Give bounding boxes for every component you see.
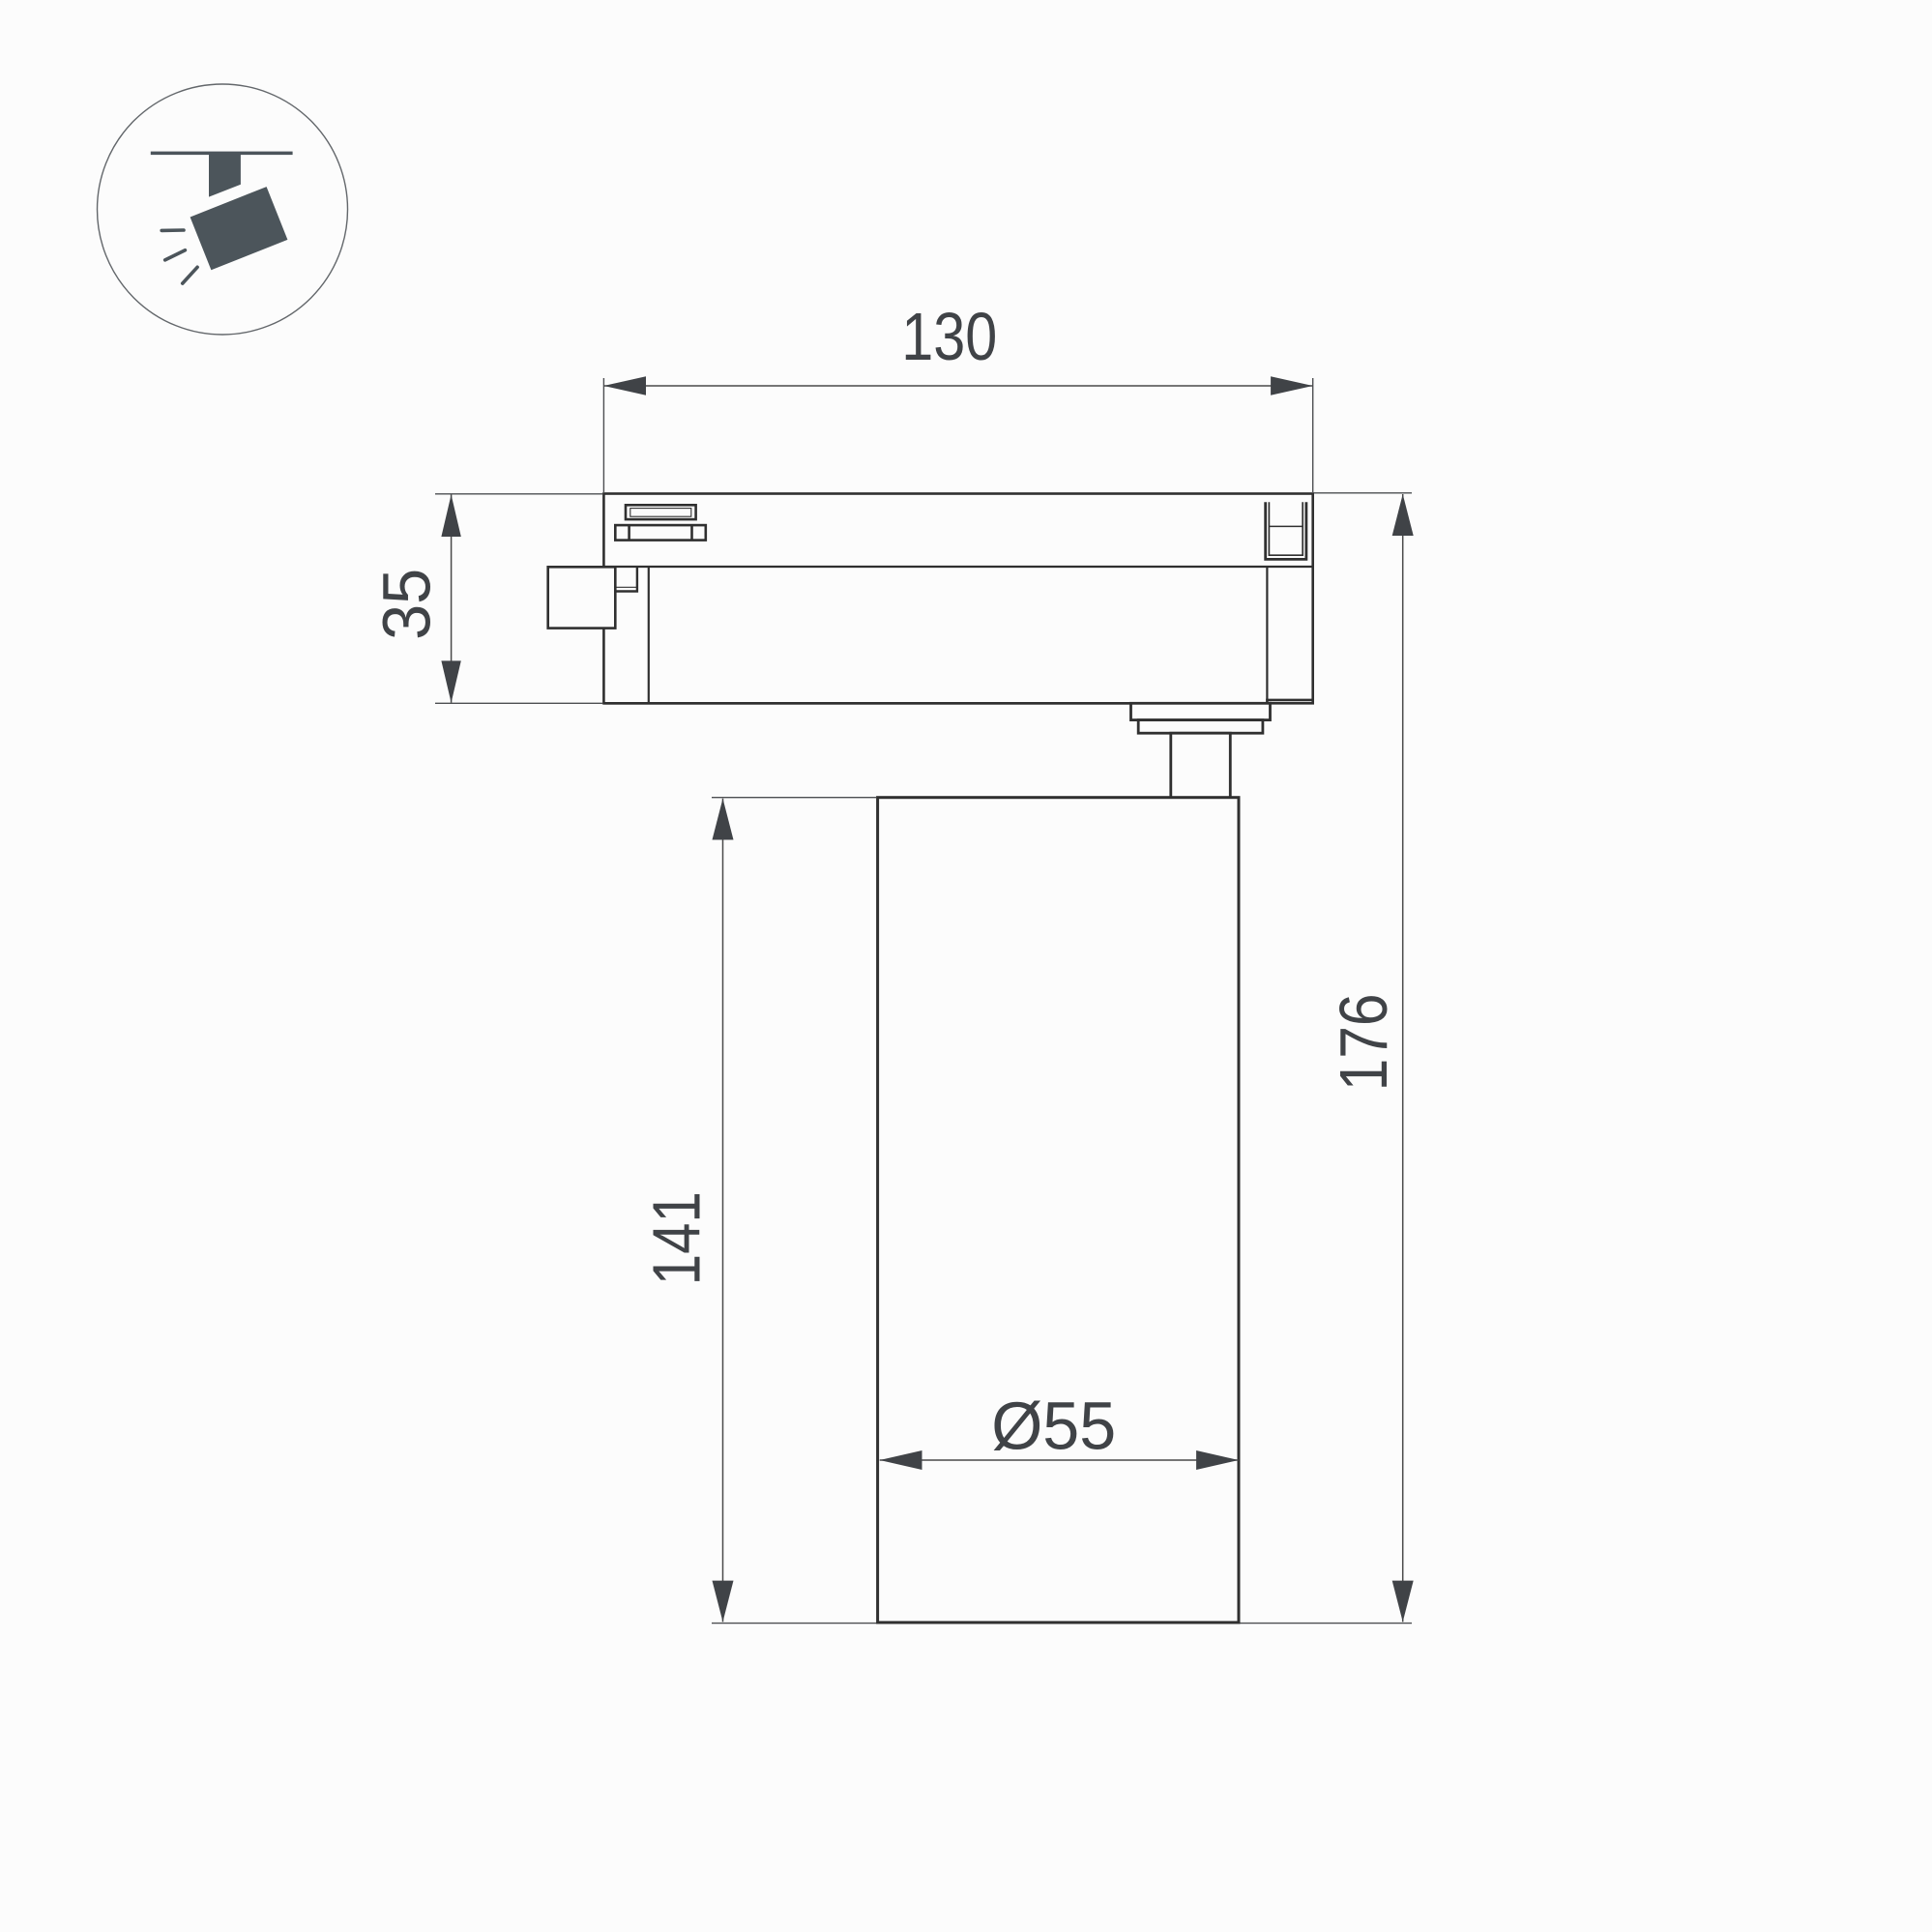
svg-text:Ø55: Ø55 bbox=[991, 1388, 1116, 1463]
svg-text:176: 176 bbox=[1326, 993, 1401, 1091]
svg-text:141: 141 bbox=[639, 1191, 715, 1285]
svg-text:130: 130 bbox=[901, 299, 997, 374]
svg-text:35: 35 bbox=[369, 569, 445, 640]
